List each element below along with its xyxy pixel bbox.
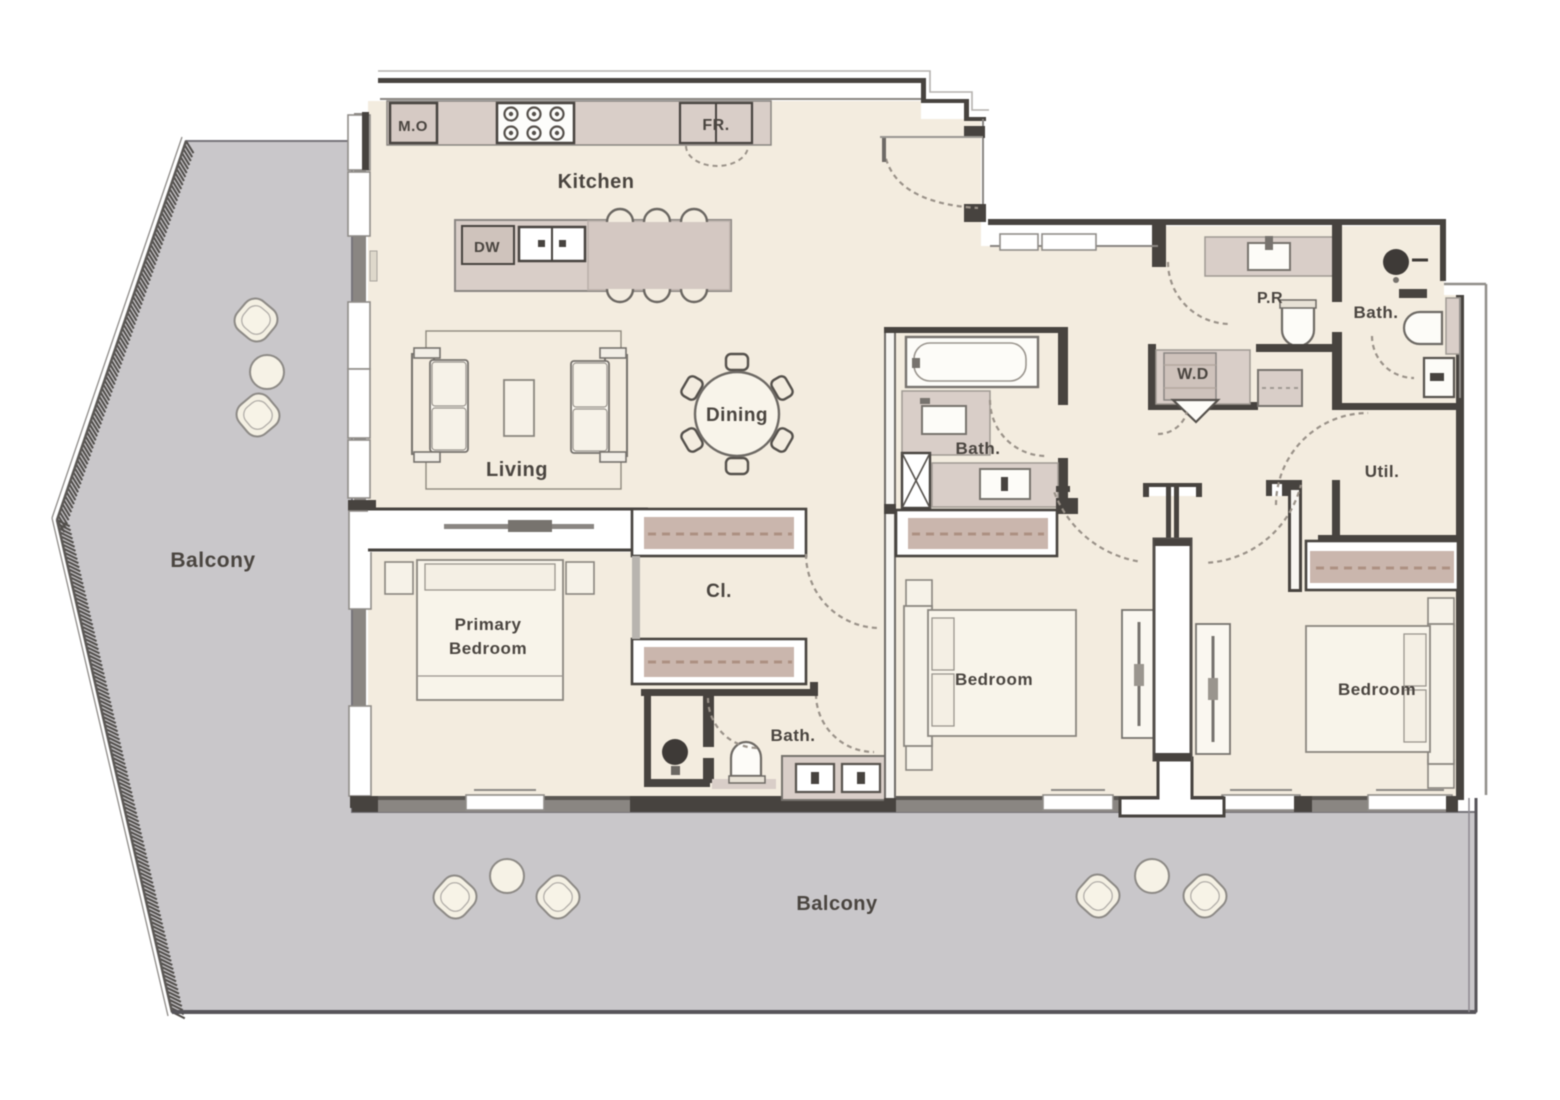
svg-text:Living: Living: [486, 459, 548, 481]
svg-text:Bath.: Bath.: [1354, 303, 1399, 322]
svg-text:FR.: FR.: [702, 117, 729, 134]
svg-text:Util.: Util.: [1365, 462, 1400, 481]
svg-text:M.O: M.O: [398, 118, 428, 135]
svg-text:Bedroom: Bedroom: [955, 670, 1033, 689]
svg-text:Kitchen: Kitchen: [558, 171, 635, 193]
svg-text:Bath.: Bath.: [771, 726, 816, 745]
svg-text:Bedroom: Bedroom: [1338, 680, 1416, 699]
svg-text:DW: DW: [474, 239, 500, 256]
svg-text:Bath.: Bath.: [956, 439, 1001, 458]
svg-text:P.R: P.R: [1257, 290, 1283, 307]
svg-text:Balcony: Balcony: [170, 549, 255, 572]
svg-text:Bedroom: Bedroom: [449, 639, 527, 658]
svg-text:Dining: Dining: [706, 405, 768, 426]
svg-text:Cl.: Cl.: [706, 581, 732, 602]
svg-text:W.D: W.D: [1177, 366, 1209, 383]
svg-text:Balcony: Balcony: [796, 893, 878, 915]
svg-text:Primary: Primary: [455, 615, 522, 634]
